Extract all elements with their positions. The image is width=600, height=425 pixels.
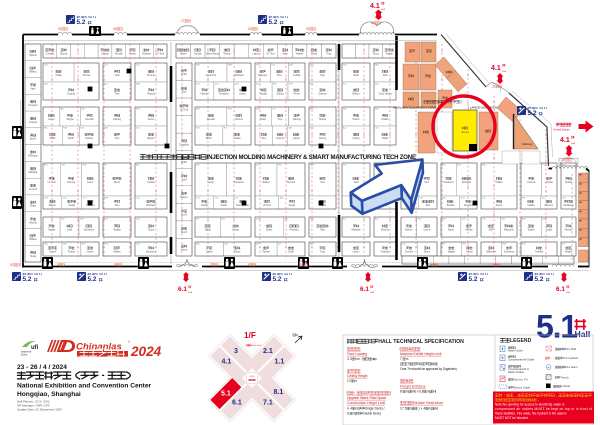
svg-text:Kebida: Kebida (465, 229, 473, 231)
svg-text:Liansu: Liansu (206, 251, 213, 253)
svg-text:Tederic: Tederic (352, 118, 360, 121)
svg-text:Wittmann: Wittmann (504, 228, 514, 231)
svg-text:Haitian: Haitian (113, 250, 121, 253)
svg-text:Bekum: Bekum (352, 93, 359, 95)
svg-text:3.5: 3.5 (347, 357, 352, 361)
svg-text:Sino: Sino (424, 182, 429, 184)
svg-text:Haida: Haida (382, 138, 389, 140)
svg-text:ton /: ton / (355, 357, 362, 361)
svg-text:Cosmos: Cosmos (67, 93, 76, 95)
svg-text:L) x 4: L) x 4 (417, 407, 426, 411)
svg-text:LEGEND: LEGEND (510, 338, 532, 344)
svg-text:Jwell: Jwell (114, 75, 120, 77)
svg-text:Sino: Sino (262, 138, 267, 140)
svg-text:5.2: 5.2 (23, 276, 32, 283)
svg-text:Sino: Sino (277, 75, 282, 77)
svg-text:17.5: 17.5 (400, 407, 407, 411)
svg-text:Sino: Sino (115, 138, 120, 140)
svg-text:8.1: 8.1 (274, 389, 284, 396)
svg-text:Electric Cable: Electric Cable (513, 385, 530, 389)
svg-text:Liansu: Liansu (239, 93, 246, 95)
svg-text:6: 6 (347, 412, 349, 416)
svg-text:LK Tech: LK Tech (29, 189, 38, 191)
svg-text:Demark: Demark (287, 181, 296, 184)
svg-text:Runma: Runma (235, 119, 243, 121)
svg-text:7: 7 (400, 357, 402, 361)
svg-text:Donghua: Donghua (179, 144, 189, 146)
svg-text:1/F: 1/F (244, 331, 256, 340)
svg-text:Toyo: Toyo (115, 205, 121, 207)
svg-text:23 - 26 / 4 / 2024: 23 - 26 / 4 / 2024 (17, 364, 67, 371)
svg-text:INJECTION MOLDING MACHINERY &: INJECTION MOLDING MACHINERY & SMART MANU… (207, 155, 416, 161)
svg-text:compressed air outlets MUST be: compressed air outlets MUST be kept on t… (495, 407, 592, 411)
svg-text:Cosmos: Cosmos (46, 53, 55, 55)
svg-text:Toyo: Toyo (326, 53, 332, 55)
svg-text:Ningbo: Ningbo (113, 229, 121, 231)
svg-text:Arburg: Arburg (102, 52, 110, 55)
svg-text:Water Outlets: Water Outlets (508, 370, 524, 374)
svg-text:Wittmann: Wittmann (146, 204, 156, 207)
svg-text:15: 15 (58, 27, 62, 31)
svg-text:Kairong: Kairong (293, 118, 302, 121)
svg-text:10: 10 (10, 263, 14, 267)
svg-text:North Hall: North Hall (251, 344, 262, 347)
svg-text:HALL TECHNICAL SPECIFICATION: HALL TECHNICAL SPECIFICATION (378, 339, 464, 345)
svg-text:Toyo: Toyo (182, 92, 188, 94)
svg-text:Fanuc: Fanuc (373, 53, 380, 55)
svg-text:LK Tech: LK Tech (180, 109, 189, 111)
svg-text:N: N (296, 333, 298, 337)
svg-text:Apex: Apex (282, 52, 288, 55)
svg-text:Arburg: Arburg (277, 92, 285, 95)
svg-text:Sepro: Sepro (148, 228, 155, 231)
svg-text:Zhafir: Zhafir (353, 74, 359, 77)
svg-text:1.1: 1.1 (275, 359, 285, 366)
svg-text:Zhafir: Zhafir (260, 118, 266, 121)
svg-text:Cosmos: Cosmos (276, 138, 285, 140)
svg-text:Donghua: Donghua (464, 205, 474, 207)
svg-text:4.1: 4.1 (370, 3, 380, 10)
svg-text:Ningbo: Ningbo (260, 93, 268, 95)
svg-text:5.1: 5.1 (221, 391, 231, 398)
svg-text:Runma: Runma (60, 53, 68, 55)
svg-text:Wittmann: Wittmann (234, 74, 244, 77)
svg-text:Arburg: Arburg (353, 137, 361, 140)
svg-text:6.1: 6.1 (232, 400, 242, 407)
svg-text:5.2: 5.2 (469, 276, 478, 283)
svg-text:Bekum: Bekum (180, 197, 187, 199)
svg-text:Arburg: Arburg (319, 137, 327, 140)
svg-text:Liansu: Liansu (353, 251, 360, 253)
svg-text:Sino: Sino (320, 182, 325, 184)
svg-text:Chinaplas: Chinaplas (76, 342, 122, 353)
svg-text:5.1/F: 5.1/F (250, 376, 256, 378)
svg-text:these facilities. Fire walls,: these facilities. Fire walls, fire hydra… (495, 412, 567, 416)
svg-text:Update Date: 21 September 2023: Update Date: 21 September 2023 (17, 408, 62, 412)
svg-text:Bekum: Bekum (405, 229, 412, 231)
svg-text:Ningbo: Ningbo (565, 251, 573, 253)
svg-text:Kairong: Kairong (113, 118, 122, 121)
svg-text:Single Deck) /: Single Deck) / (365, 407, 385, 411)
svg-text:16: 16 (113, 27, 117, 31)
svg-text:7.1: 7.1 (263, 400, 273, 407)
svg-text:Ceiling Height: Ceiling Height (347, 374, 367, 378)
svg-text:Fangli: Fangli (69, 205, 76, 207)
svg-text:Borch: Borch (30, 138, 37, 141)
svg-text:Kebida: Kebida (565, 182, 573, 184)
svg-text:Fire Hydrant: Fire Hydrant (563, 356, 579, 360)
svg-text:Vehicle Restriction: Vehicle Restriction (414, 401, 444, 405)
svg-text:Upgrade Stand / Raw Space: Upgrade Stand / Raw Space (347, 396, 386, 400)
svg-text:Hall: Hall (566, 292, 570, 294)
svg-text:Zhafir: Zhafir (221, 204, 227, 207)
svg-text:19: 19 (248, 27, 252, 31)
svg-text:6.1: 6.1 (556, 286, 565, 293)
svg-text:Topstar: Topstar (546, 181, 554, 184)
svg-text:Sumitomo: Sumitomo (563, 204, 574, 207)
svg-text:Kebida: Kebida (293, 75, 301, 77)
svg-text:Husky: Husky (30, 256, 37, 258)
svg-text:Double Deck): Double Deck) (362, 412, 380, 416)
svg-text:H): H) (433, 390, 436, 394)
svg-text:Compressed Air Outlet: Compressed Air Outlet (508, 358, 534, 362)
svg-text:20: 20 (371, 21, 375, 25)
svg-text:To Hall 5.2: To Hall 5.2 (95, 273, 107, 276)
svg-text:17: 17 (181, 19, 185, 23)
svg-text:10: 10 (347, 379, 351, 383)
svg-text:Topstar: Topstar (194, 52, 202, 55)
svg-text:Lesun: Lesun (87, 182, 94, 184)
svg-text:8: 8 (400, 390, 402, 394)
svg-text:Jwell: Jwell (382, 75, 388, 77)
svg-text:Gatheng: Gatheng (522, 142, 533, 146)
svg-text:LK Tech: LK Tech (263, 205, 272, 207)
svg-text:Over 7m should be approved by: Over 7m should be approved by Organizer) (400, 367, 457, 371)
svg-text:H): H) (435, 407, 438, 411)
svg-text:Toshiba: Toshiba (446, 205, 455, 207)
svg-text:Sepro: Sepro (546, 228, 553, 231)
svg-text:Kairong: Kairong (67, 181, 76, 184)
svg-text:Hilectro: Hilectro (147, 92, 156, 95)
svg-text:2.1: 2.1 (263, 348, 273, 355)
svg-text:Demark: Demark (86, 118, 95, 121)
svg-text:Niigata: Niigata (448, 250, 456, 253)
svg-text:Hilectro: Hilectro (29, 54, 38, 57)
svg-text:Yizumi: Yizumi (293, 93, 300, 95)
svg-text:Jwell: Jwell (353, 182, 359, 184)
svg-text:Runma: Runma (83, 75, 91, 77)
svg-text:Yizumi: Yizumi (49, 251, 56, 253)
svg-text:Water Outlet: Water Outlet (508, 349, 523, 353)
svg-text:JSW: JSW (488, 229, 494, 231)
svg-text:Powerjet: Powerjet (258, 74, 267, 77)
svg-text:5.2: 5.2 (528, 110, 537, 117)
svg-text:Haitian: Haitian (495, 181, 503, 184)
svg-text:Freight Entrance: Freight Entrance (400, 385, 426, 389)
svg-text:Kairong: Kairong (381, 250, 390, 253)
svg-text:4.1: 4.1 (491, 65, 501, 72)
svg-text:Electric Pit: Electric Pit (513, 377, 528, 381)
svg-text:To Hall 5.2: To Hall 5.2 (84, 16, 96, 19)
svg-text:To Hall 5.2: To Hall 5.2 (30, 273, 42, 276)
svg-text:Welltec: Welltec (29, 238, 37, 241)
svg-text:W) x 6.8: W) x 6.8 (412, 390, 424, 394)
svg-text:Hilectro: Hilectro (29, 222, 38, 225)
svg-text:3: 3 (234, 348, 238, 355)
svg-text:Lesun: Lesun (208, 182, 215, 184)
svg-text:Zhafir: Zhafir (68, 137, 74, 140)
svg-text:Runma: Runma (147, 75, 155, 77)
svg-text:Hall: Hall (502, 71, 506, 73)
svg-text:Fanuc: Fanuc (148, 119, 155, 121)
svg-text:Multiplas: Multiplas (462, 181, 472, 184)
svg-text:Zhafir: Zhafir (288, 250, 294, 253)
svg-text:ufi: ufi (31, 345, 39, 351)
svg-text:Construction Height Limit: Construction Height Limit (347, 401, 385, 405)
svg-text:Hongqiao, Shanghai: Hongqiao, Shanghai (17, 391, 81, 398)
svg-text:Sumitomo: Sumitomo (206, 74, 217, 77)
svg-text:Borch: Borch (114, 181, 121, 184)
svg-text:Hilectro: Hilectro (565, 228, 574, 231)
svg-text:National Exhibition and Conven: National Exhibition and Convention Cente… (17, 383, 152, 390)
svg-text:Tederic: Tederic (527, 228, 535, 231)
svg-text:Engel: Engel (48, 119, 54, 121)
svg-text:Haitian: Haitian (296, 52, 304, 55)
svg-text:Multiplas: Multiplas (351, 228, 361, 231)
svg-text:Liansu: Liansu (232, 229, 239, 231)
svg-text:Note:No opening for access to: Note:No opening for access to electricit… (495, 403, 565, 407)
svg-text:/: / (354, 391, 355, 395)
svg-text:4.4: 4.4 (347, 407, 352, 411)
svg-text:Hall: Hall (188, 292, 192, 294)
svg-text:Donghua: Donghua (219, 93, 229, 95)
svg-text:5.2: 5.2 (273, 276, 282, 283)
svg-text:Cosmos: Cosmos (527, 182, 536, 184)
svg-text:Borch: Borch (424, 250, 431, 253)
svg-text:Fire Wall: Fire Wall (565, 347, 576, 351)
svg-text:Liansu: Liansu (466, 251, 473, 253)
svg-text:Trench: Trench (560, 375, 569, 379)
svg-text:To Hall 5.2: To Hall 5.2 (542, 273, 554, 276)
svg-text:Welltec: Welltec (262, 181, 270, 184)
svg-text:Tederic: Tederic (223, 52, 231, 55)
svg-text:Engel: Engel (30, 206, 36, 208)
svg-text:6.1: 6.1 (360, 286, 369, 293)
svg-text:Powerjet: Powerjet (29, 104, 38, 107)
svg-text:5.2: 5.2 (535, 276, 544, 283)
svg-text:Toshiba: Toshiba (535, 251, 544, 253)
svg-text:Powerjet: Powerjet (290, 228, 299, 231)
svg-text:Borch: Borch (206, 137, 213, 140)
svg-text:Cosmos: Cosmos (29, 122, 38, 124)
svg-text:Haida: Haida (56, 75, 63, 77)
svg-text:Useon: Useon (180, 53, 187, 55)
svg-text:Demark: Demark (115, 52, 124, 55)
svg-text:e-Panel: e-Panel (561, 384, 571, 388)
svg-text:Wittmann: Wittmann (486, 250, 496, 253)
svg-text:Multiplas: Multiplas (28, 171, 38, 174)
svg-text:2024: 2024 (130, 344, 162, 359)
svg-text:Topstar: Topstar (385, 52, 393, 55)
svg-text:Sumitomo: Sumitomo (84, 228, 95, 231)
svg-text:Haitian: Haitian (381, 118, 389, 121)
svg-text:Useon: Useon (129, 53, 136, 55)
svg-text:4.1: 4.1 (560, 137, 570, 144)
svg-text:Topstar: Topstar (262, 250, 270, 253)
svg-text:Zhafir: Zhafir (50, 137, 56, 140)
svg-text:Hall: Hall (381, 9, 385, 11)
svg-text:Sino: Sino (426, 205, 431, 207)
svg-text:Bekum: Bekum (49, 205, 56, 207)
svg-text:Zhafir: Zhafir (266, 228, 272, 231)
svg-text:To Hall 5.2: To Hall 5.2 (276, 16, 288, 19)
svg-text:22: 22 (562, 158, 566, 162)
svg-text:Ningbo: Ningbo (66, 119, 74, 121)
svg-text:Kebida: Kebida (233, 138, 241, 140)
svg-text:MUST NOT be blocked.: MUST NOT be blocked. (495, 416, 529, 420)
svg-text:Fanuc: Fanuc (496, 205, 503, 207)
svg-text:Fire Alarm: Fire Alarm (565, 365, 577, 369)
svg-text:Engel: Engel (234, 251, 240, 253)
svg-text:Useon: Useon (87, 251, 94, 253)
svg-text:AUXILIARY EQUIPMENT ZONE: AUXILIARY EQUIPMENT ZONE (393, 106, 436, 110)
svg-text:LK Tech: LK Tech (156, 53, 165, 55)
svg-text:Wensci: Wensci (461, 131, 469, 134)
svg-text:Sumitomo: Sumitomo (443, 181, 454, 184)
svg-text:Apex: Apex (30, 87, 36, 90)
svg-text:LK Tech: LK Tech (266, 53, 275, 55)
svg-text:Toyo: Toyo (320, 251, 326, 253)
svg-text:Sumitomo: Sumitomo (146, 250, 157, 253)
svg-text:To Hall 5.2: To Hall 5.2 (535, 107, 547, 110)
svg-text:m: m (406, 357, 409, 361)
svg-text:Topstar: Topstar (319, 118, 327, 121)
svg-text:Liansu: Liansu (253, 53, 260, 55)
svg-text:Toyo: Toyo (115, 93, 121, 95)
svg-text:Hall: Hall (370, 292, 374, 294)
svg-text:Welltec: Welltec (29, 71, 37, 74)
svg-text:4.1: 4.1 (222, 359, 232, 366)
svg-text:Kebida: Kebida (86, 138, 94, 140)
svg-text:Jwell: Jwell (67, 229, 73, 231)
svg-text:Tayu: Tayu (320, 229, 326, 231)
svg-text:Fangli: Fangli (289, 205, 296, 207)
svg-text:6.1: 6.1 (178, 286, 187, 293)
svg-text:sqm: sqm (372, 357, 377, 361)
svg-text:Wittmann: Wittmann (28, 154, 38, 157)
svg-text:Liansu: Liansu (293, 138, 300, 140)
svg-text:Sumitomo: Sumitomo (234, 181, 245, 184)
svg-text:m: m (354, 379, 357, 383)
svg-text:Fangli: Fangli (201, 205, 208, 207)
svg-text:Demark: Demark (405, 250, 414, 253)
svg-text:Kebida: Kebida (527, 205, 535, 207)
svg-text:Machine Exhibit Height Limit: Machine Exhibit Height Limit (400, 352, 442, 356)
svg-text:5.2: 5.2 (77, 19, 86, 26)
svg-text:To Hall 5.2: To Hall 5.2 (476, 273, 488, 276)
svg-text:5.1: 5.1 (536, 309, 577, 345)
svg-text:Tederic: Tederic (68, 250, 76, 253)
svg-text:Event: Event (21, 353, 27, 356)
svg-text:Kairong: Kairong (319, 92, 328, 95)
svg-text:Toyo: Toyo (277, 119, 283, 121)
svg-text:Hall: Hall (575, 329, 591, 339)
svg-text:Sumitomo: Sumitomo (504, 250, 515, 253)
svg-text:Kebida: Kebida (147, 182, 155, 184)
svg-text:Bekum: Bekum (147, 138, 154, 140)
svg-text:Powerjet: Powerjet (142, 52, 151, 55)
svg-text:To Hall 5.2: To Hall 5.2 (280, 273, 292, 276)
svg-text:Sepro: Sepro (448, 228, 455, 231)
svg-text:Hall: Hall (571, 143, 575, 145)
svg-text:Useon: Useon (424, 229, 431, 231)
svg-text:Central Square: Central Square (553, 129, 570, 132)
svg-text:5.2: 5.2 (269, 19, 278, 26)
svg-text:21: 21 (492, 85, 496, 89)
svg-text:Tayu: Tayu (320, 75, 326, 77)
svg-text:Hilectro: Hilectro (381, 228, 390, 231)
svg-text:5.2: 5.2 (88, 276, 97, 283)
svg-text:Floor Loading: Floor Loading (347, 352, 367, 356)
svg-text:19: 19 (306, 27, 310, 31)
